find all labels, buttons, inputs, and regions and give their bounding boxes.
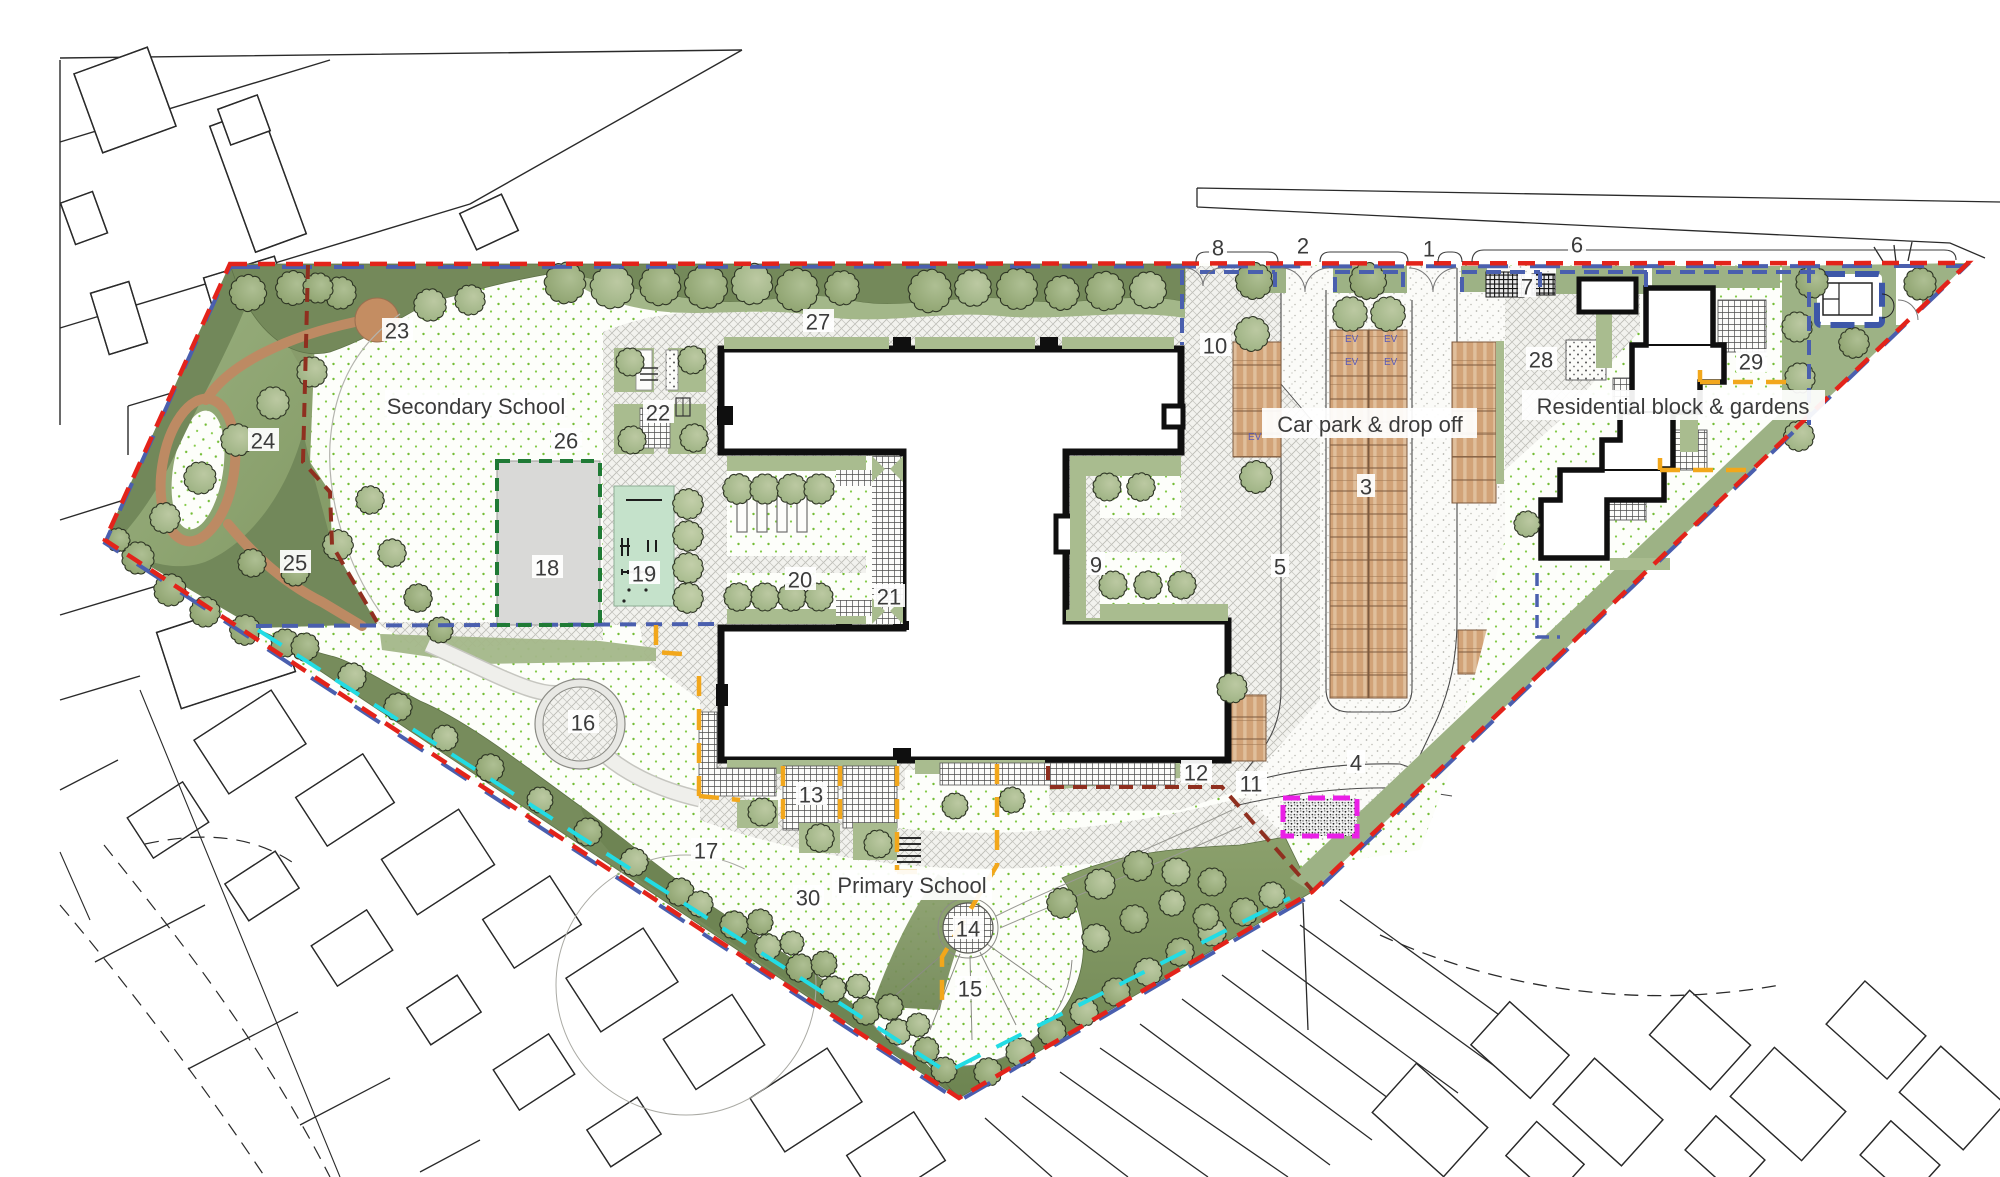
svg-text:26: 26 (554, 428, 578, 453)
svg-text:3: 3 (1360, 474, 1372, 499)
svg-text:19: 19 (632, 561, 656, 586)
svg-text:5: 5 (1274, 554, 1286, 579)
svg-text:1: 1 (1423, 236, 1435, 261)
svg-text:EV: EV (1384, 357, 1398, 368)
svg-text:13: 13 (799, 782, 823, 807)
svg-text:4: 4 (1350, 750, 1362, 775)
svg-text:Car park & drop off: Car park & drop off (1277, 412, 1463, 437)
svg-text:21: 21 (877, 584, 901, 609)
svg-text:6: 6 (1571, 232, 1583, 257)
svg-text:EV: EV (1248, 432, 1262, 443)
svg-text:9: 9 (1090, 552, 1102, 577)
svg-text:23: 23 (385, 318, 409, 343)
svg-text:Residential block & gardens: Residential block & gardens (1537, 394, 1810, 419)
svg-text:22: 22 (646, 400, 670, 425)
svg-text:11: 11 (1240, 771, 1263, 796)
svg-text:EV: EV (1384, 334, 1398, 345)
svg-text:18: 18 (535, 555, 559, 580)
svg-text:EV: EV (1345, 334, 1359, 345)
svg-text:2: 2 (1297, 233, 1309, 258)
svg-text:29: 29 (1739, 349, 1763, 374)
svg-text:8: 8 (1212, 235, 1224, 260)
svg-text:Primary School: Primary School (837, 873, 986, 898)
svg-text:30: 30 (796, 885, 820, 910)
svg-text:25: 25 (283, 550, 307, 575)
svg-text:10: 10 (1203, 333, 1227, 358)
svg-text:20: 20 (788, 567, 812, 592)
svg-text:27: 27 (806, 309, 830, 334)
svg-text:7: 7 (1521, 274, 1533, 299)
svg-text:24: 24 (251, 428, 275, 453)
svg-text:14: 14 (956, 916, 980, 941)
svg-text:Secondary School: Secondary School (387, 394, 566, 419)
svg-text:EV: EV (1345, 357, 1359, 368)
svg-text:28: 28 (1529, 347, 1553, 372)
svg-text:15: 15 (958, 976, 982, 1001)
svg-text:16: 16 (571, 710, 595, 735)
svg-text:12: 12 (1184, 760, 1208, 785)
svg-text:17: 17 (694, 838, 718, 863)
